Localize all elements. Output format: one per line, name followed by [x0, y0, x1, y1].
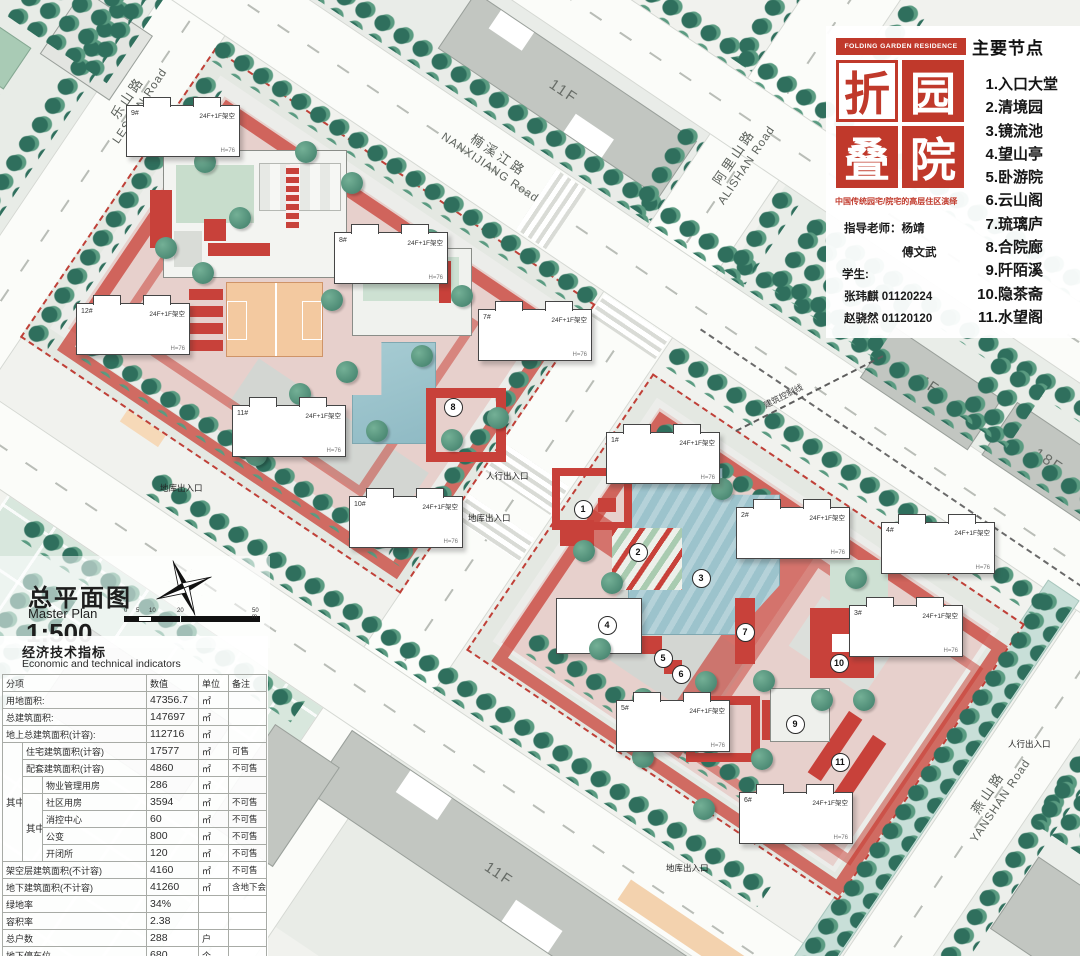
indicator-note: [229, 930, 267, 947]
tower-11#: 11#24F+1F架空H=76: [232, 405, 346, 457]
indicator-unit: ㎡: [199, 760, 229, 777]
indicator-note: [229, 709, 267, 726]
pedestrian-entrance-label: 人行出入口: [486, 470, 529, 482]
indicator-unit: ㎡: [199, 743, 229, 760]
student-name: 张玮麒 01120224: [844, 288, 932, 304]
indicator-note: 不可售: [229, 760, 267, 777]
indicator-row: 地上总建筑面积(计容):112716㎡: [3, 726, 267, 743]
indicator-unit: ㎡: [199, 845, 229, 862]
courtyard-complex: [163, 150, 347, 278]
indicator-note: 不可售: [229, 811, 267, 828]
indicator-unit: ㎡: [199, 709, 229, 726]
indicator-row: 公变800㎡不可售: [3, 828, 267, 845]
indicator-name: 消控中心: [43, 811, 147, 828]
indicator-row: 地下停车位680个: [3, 947, 267, 956]
tower-height-label: H=76: [220, 148, 235, 154]
indicator-value: 147697: [147, 709, 199, 726]
garage-entrance-label: 地库出入口: [160, 482, 203, 494]
red-bench: [189, 289, 223, 300]
scale-tick: 50 m: [252, 608, 264, 620]
legend-node-label: 入口大堂: [998, 73, 1058, 96]
tower-wing: [93, 295, 121, 305]
legend-node-number: 2.: [972, 96, 998, 119]
indicator-unit: ㎡: [199, 777, 229, 794]
tree-icon: [341, 172, 363, 194]
tower-spec-label: 24F+1F架空: [407, 237, 443, 247]
scale-bar: 0 5 10 20 50 m: [124, 608, 264, 626]
indicator-value: 2.38: [147, 913, 199, 930]
rail-cell: 其中: [23, 794, 43, 862]
student-name: 赵骁然 01120120: [844, 310, 932, 326]
tree-icon: [321, 289, 343, 311]
indicator-name: 住宅建筑面积(计容): [23, 743, 147, 760]
tower-spec-label: 24F+1F架空: [422, 501, 458, 511]
legend-node-item: 2.清境园: [972, 96, 1078, 119]
court-centerline: [275, 283, 277, 356]
site-node-9: 9: [786, 715, 805, 734]
nodes-legend: 主要节点 1.入口大堂2.清境园3.镜流池4.望山亭5.卧游院6.云山阁7.琉璃…: [972, 34, 1078, 329]
tower-spec-label: 24F+1F架空: [809, 512, 845, 522]
indicators-table: 分项 数值 单位 备注 用地面积:47356.7㎡总建筑面积:147697㎡地上…: [2, 674, 267, 956]
site-node-2: 2: [629, 543, 648, 562]
court-key: [227, 301, 247, 341]
indicator-unit: 户: [199, 930, 229, 947]
indicator-name: 地下建筑面积(不计容): [3, 879, 147, 896]
legend-node-number: 7.: [972, 213, 998, 236]
tower-wing: [366, 488, 394, 498]
indicator-unit: 个: [199, 947, 229, 956]
scale-tick: 20: [177, 608, 184, 614]
indicator-value: 680: [147, 947, 199, 956]
logo-char: 院: [902, 126, 964, 188]
tree-icon: [845, 567, 867, 589]
tree-icon: [589, 638, 611, 660]
garage-entrance-label: 地库出入口: [468, 512, 511, 524]
legend-node-item: 1.入口大堂: [972, 73, 1078, 96]
entry-pavilion: [598, 498, 616, 512]
tower-id-label: 1#: [611, 437, 619, 444]
legend-node-number: 4.: [972, 143, 998, 166]
brand-logo: 折 园 叠 院: [836, 60, 964, 188]
indicator-row: 容积率2.38: [3, 913, 267, 930]
indicator-value: 34%: [147, 896, 199, 913]
indicator-name: 架空层建筑面积(不计容): [3, 862, 147, 879]
indicator-note: 不可售: [229, 794, 267, 811]
tower-wing: [545, 301, 573, 311]
tree-icon: [411, 345, 433, 367]
indicator-unit: ㎡: [199, 862, 229, 879]
tower-id-label: 4#: [886, 527, 894, 534]
indicator-row: 开闭所120㎡不可售: [3, 845, 267, 862]
tower-2#: 2#24F+1F架空H=76: [736, 507, 850, 559]
indicator-name: 总建筑面积:: [3, 709, 147, 726]
tower-spec-label: 24F+1F架空: [689, 705, 725, 715]
scale-segment: [124, 616, 138, 622]
tower-wing: [753, 499, 781, 509]
indicator-row: 消控中心60㎡不可售: [3, 811, 267, 828]
indicator-name: 地下停车位: [3, 947, 147, 956]
indicator-row: 架空层建筑面积(不计容)4160㎡不可售: [3, 862, 267, 879]
tree-icon: [573, 540, 595, 562]
tower-wing: [351, 224, 379, 234]
rail-cell: [23, 777, 43, 794]
red-bench: [189, 323, 223, 334]
tower-wing: [948, 514, 976, 524]
student-label: 学生:: [842, 266, 869, 282]
tower-spec-label: 24F+1F架空: [305, 410, 341, 420]
tower-height-label: H=76: [443, 539, 458, 545]
tower-wing: [756, 784, 784, 794]
site-node-4: 4: [598, 616, 617, 635]
indicator-note: 不可售: [229, 845, 267, 862]
advisor-name: 傅文武: [902, 244, 937, 260]
tower-4#: 4#24F+1F架空H=76: [881, 522, 995, 574]
pedestrian-entrance-label: 人行出入口: [1008, 738, 1051, 750]
indicator-unit: ㎡: [199, 811, 229, 828]
tower-12#: 12#24F+1F架空H=76: [76, 303, 190, 355]
tree-icon: [695, 671, 717, 693]
indicator-value: 800: [147, 828, 199, 845]
tower-wing: [803, 499, 831, 509]
tower-3#: 3#24F+1F架空H=76: [849, 605, 963, 657]
tower-5#: 5#24F+1F架空H=76: [616, 700, 730, 752]
brand-banner: FOLDING GARDEN RESIDENCE: [836, 38, 966, 55]
legend-node-item: 11.水望阁: [972, 306, 1078, 329]
indicator-row: 总建筑面积:147697㎡: [3, 709, 267, 726]
tower-wing: [143, 97, 171, 107]
tower-wing: [898, 514, 926, 524]
indicator-value: 17577: [147, 743, 199, 760]
legend-node-label: 镜流池: [998, 120, 1043, 143]
nodes-title: 主要节点: [972, 34, 1078, 59]
header-note: 备注: [229, 675, 267, 692]
tree-icon: [336, 361, 358, 383]
legend-node-item: 6.云山阁: [972, 189, 1078, 212]
indicator-note: [229, 777, 267, 794]
paving: [174, 231, 202, 267]
indicator-row: 其中社区用房3594㎡不可售: [3, 794, 267, 811]
tower-height-label: H=76: [943, 648, 958, 654]
legend-node-item: 5.卧游院: [972, 166, 1078, 189]
tower-id-label: 7#: [483, 314, 491, 321]
indicator-unit: [199, 913, 229, 930]
rail-cell: 其中: [3, 743, 23, 862]
scale-segment: [138, 616, 152, 622]
advisor-line: 指导老师：杨靖: [844, 220, 925, 236]
indicator-unit: ㎡: [199, 692, 229, 709]
legend-node-label: 隐茶斋: [998, 283, 1043, 306]
scale-segment: [152, 616, 180, 622]
legend-node-label: 琉璃庐: [998, 213, 1043, 236]
tower-height-label: H=76: [170, 346, 185, 352]
tree-icon: [751, 748, 773, 770]
tree-icon: [601, 572, 623, 594]
tower-wing: [143, 295, 171, 305]
tower-wing: [623, 424, 651, 434]
legend-node-number: 9.: [972, 259, 998, 282]
tower-7#: 7#24F+1F架空H=76: [478, 309, 592, 361]
indicator-value: 47356.7: [147, 692, 199, 709]
tower-id-label: 3#: [854, 610, 862, 617]
scale-tick: 5: [136, 608, 139, 614]
indicator-note: [229, 692, 267, 709]
tower-9#: 9#24F+1F架空H=76: [126, 105, 240, 157]
site-node-11: 11: [831, 753, 850, 772]
red-bench: [208, 243, 270, 256]
tower-height-label: H=76: [833, 835, 848, 841]
legend-node-number: 10.: [972, 283, 998, 306]
tower-spec-label: 24F+1F架空: [551, 314, 587, 324]
indicator-name: 开闭所: [43, 845, 147, 862]
tower-id-label: 8#: [339, 237, 347, 244]
indicators-subtitle: Economic and technical indicators: [22, 658, 181, 670]
legend-node-number: 5.: [972, 166, 998, 189]
site-node-6: 6: [672, 665, 691, 684]
tower-wing: [299, 397, 327, 407]
masterplan-sheet: 11F 4F 18F 11F: [0, 0, 1080, 956]
tree-icon: [693, 798, 715, 820]
advisor-name: 杨靖: [902, 223, 925, 235]
tower-height-label: H=76: [975, 565, 990, 571]
legend-node-item: 3.镜流池: [972, 120, 1078, 143]
indicator-note: [229, 726, 267, 743]
indicator-row: 配套建筑面积(计容)4860㎡不可售: [3, 760, 267, 777]
indicator-note: 不可售: [229, 862, 267, 879]
legend-node-label: 阡陌溪: [998, 259, 1043, 282]
tower-id-label: 12#: [81, 308, 93, 315]
indicator-value: 3594: [147, 794, 199, 811]
indicator-row: 地下建筑面积(不计容)41260㎡含地下会所: [3, 879, 267, 896]
indicator-note: 含地下会所: [229, 879, 267, 896]
tower-wing: [416, 488, 444, 498]
indicator-value: 4160: [147, 862, 199, 879]
tower-id-label: 11#: [237, 410, 248, 417]
indicator-name: 公变: [43, 828, 147, 845]
indicator-name: 总户数: [3, 930, 147, 947]
indicator-name: 绿地率: [3, 896, 147, 913]
tower-wing: [673, 424, 701, 434]
indicator-note: 可售: [229, 743, 267, 760]
legend-node-item: 9.阡陌溪: [972, 259, 1078, 282]
tower-height-label: H=76: [830, 550, 845, 556]
header-value: 数值: [147, 675, 199, 692]
tree-icon: [192, 262, 214, 284]
indicator-value: 41260: [147, 879, 199, 896]
indicator-note: [229, 913, 267, 930]
tower-spec-label: 24F+1F架空: [679, 437, 715, 447]
legend-node-item: 10.隐茶斋: [972, 283, 1078, 306]
indicator-value: 286: [147, 777, 199, 794]
indicator-name: 容积率: [3, 913, 147, 930]
indicator-name: 物业管理用房: [43, 777, 147, 794]
nodes-list: 1.入口大堂2.清境园3.镜流池4.望山亭5.卧游院6.云山阁7.琉璃庐8.合院…: [972, 73, 1078, 329]
tower-spec-label: 24F+1F架空: [812, 797, 848, 807]
table-header-row: 分项 数值 单位 备注: [3, 675, 267, 692]
header-item: 分项: [3, 675, 147, 692]
tree-icon: [155, 237, 177, 259]
garage-entrance-label: 地库出入口: [666, 862, 709, 874]
indicator-note: [229, 896, 267, 913]
legend-node-number: 8.: [972, 236, 998, 259]
tower-id-label: 10#: [354, 501, 366, 508]
red-bench: [189, 306, 223, 317]
tree-icon: [451, 285, 473, 307]
legend-node-label: 望山亭: [998, 143, 1043, 166]
indicator-name: 用地面积:: [3, 692, 147, 709]
title-block: 总平面图 Master Plan 1:500 0 5 10 20 50 m: [0, 556, 270, 648]
indicator-value: 4860: [147, 760, 199, 777]
indicator-value: 288: [147, 930, 199, 947]
tower-wing: [495, 301, 523, 311]
tower-wing: [916, 597, 944, 607]
tower-wing: [633, 692, 661, 702]
legend-node-label: 水望阁: [998, 306, 1043, 329]
tree-icon: [853, 689, 875, 711]
indicator-name: 地上总建筑面积(计容):: [3, 726, 147, 743]
tower-spec-label: 24F+1F架空: [922, 610, 958, 620]
red-gallery: [286, 165, 299, 229]
legend-node-number: 11.: [972, 306, 998, 329]
indicator-note: [229, 947, 267, 956]
court-key: [302, 301, 322, 341]
site-node-1: 1: [574, 500, 593, 519]
legend-node-number: 1.: [972, 73, 998, 96]
indicator-note: 不可售: [229, 828, 267, 845]
indicator-value: 112716: [147, 726, 199, 743]
tree-icon: [441, 429, 463, 451]
indicator-unit: ㎡: [199, 794, 229, 811]
tree-icon: [753, 670, 775, 692]
tower-spec-label: 24F+1F架空: [199, 110, 235, 120]
tower-wing: [683, 692, 711, 702]
tower-wing: [401, 224, 429, 234]
legend-node-label: 清境园: [998, 96, 1043, 119]
indicator-name: 配套建筑面积(计容): [23, 760, 147, 777]
legend-node-label: 卧游院: [998, 166, 1043, 189]
site-node-8: 8: [444, 398, 463, 417]
header-unit: 单位: [199, 675, 229, 692]
tower-height-label: H=76: [572, 352, 587, 358]
site-node-7: 7: [736, 623, 755, 642]
tower-id-label: 9#: [131, 110, 139, 117]
scale-tick: 10: [149, 608, 156, 614]
indicator-unit: [199, 896, 229, 913]
red-pavilion: [204, 219, 226, 241]
tower-id-label: 6#: [744, 797, 752, 804]
logo-char: 园: [902, 60, 964, 122]
indicators-panel: 经济技术指标 Economic and technical indicators…: [0, 636, 268, 956]
indicator-value: 120: [147, 845, 199, 862]
tower-height-label: H=76: [428, 275, 443, 281]
scale-segment: [181, 616, 260, 622]
tower-wing: [866, 597, 894, 607]
tower-8#: 8#24F+1F架空H=76: [334, 232, 448, 284]
tree-icon: [811, 689, 833, 711]
basketball-court: [226, 282, 323, 357]
roof-grid: [259, 163, 341, 211]
brand-subtitle: 中国传统园宅/院宅的高层住区演绎: [835, 196, 975, 207]
tower-height-label: H=76: [700, 475, 715, 481]
logo-char: 叠: [836, 126, 898, 188]
tree-icon: [487, 407, 509, 429]
tower-wing: [806, 784, 834, 794]
scale-tick: 0: [124, 608, 127, 614]
red-bench: [189, 340, 223, 351]
tower-6#: 6#24F+1F架空H=76: [739, 792, 853, 844]
advisor-label: 指导老师：: [844, 223, 902, 235]
site-node-3: 3: [692, 569, 711, 588]
tower-id-label: 2#: [741, 512, 749, 519]
indicator-unit: ㎡: [199, 879, 229, 896]
indicator-name: 社区用房: [43, 794, 147, 811]
legend-node-label: 云山阁: [998, 189, 1043, 212]
legend-node-number: 6.: [972, 189, 998, 212]
tower-spec-label: 24F+1F架空: [954, 527, 990, 537]
tower-wing: [249, 397, 277, 407]
tree-icon: [229, 207, 251, 229]
tower-spec-label: 24F+1F架空: [149, 308, 185, 318]
legend-node-item: 4.望山亭: [972, 143, 1078, 166]
tree-icon: [295, 141, 317, 163]
indicator-row: 用地面积:47356.7㎡: [3, 692, 267, 709]
indicator-value: 60: [147, 811, 199, 828]
indicator-unit: ㎡: [199, 828, 229, 845]
tower-height-label: H=76: [710, 743, 725, 749]
tower-id-label: 5#: [621, 705, 629, 712]
legend-node-item: 8.合院廊: [972, 236, 1078, 259]
tower-height-label: H=76: [326, 448, 341, 454]
indicator-row: 总户数288户: [3, 930, 267, 947]
tower-wing: [193, 97, 221, 107]
indicator-row: 其中住宅建筑面积(计容)17577㎡可售: [3, 743, 267, 760]
legend-node-number: 3.: [972, 120, 998, 143]
indicator-row: 绿地率34%: [3, 896, 267, 913]
tree-icon: [366, 420, 388, 442]
indicator-row: 物业管理用房286㎡: [3, 777, 267, 794]
control-line-chamfer: [736, 355, 884, 432]
site-node-10: 10: [830, 654, 849, 673]
tower-10#: 10#24F+1F架空H=76: [349, 496, 463, 548]
legend-panel: FOLDING GARDEN RESIDENCE 折 园 叠 院 中国传统园宅/…: [826, 26, 1080, 338]
indicator-unit: ㎡: [199, 726, 229, 743]
site-node-5: 5: [654, 649, 673, 668]
legend-node-item: 7.琉璃庐: [972, 213, 1078, 236]
tower-1#: 1#24F+1F架空H=76: [606, 432, 720, 484]
legend-node-label: 合院廊: [998, 236, 1043, 259]
logo-char: 折: [836, 60, 898, 122]
